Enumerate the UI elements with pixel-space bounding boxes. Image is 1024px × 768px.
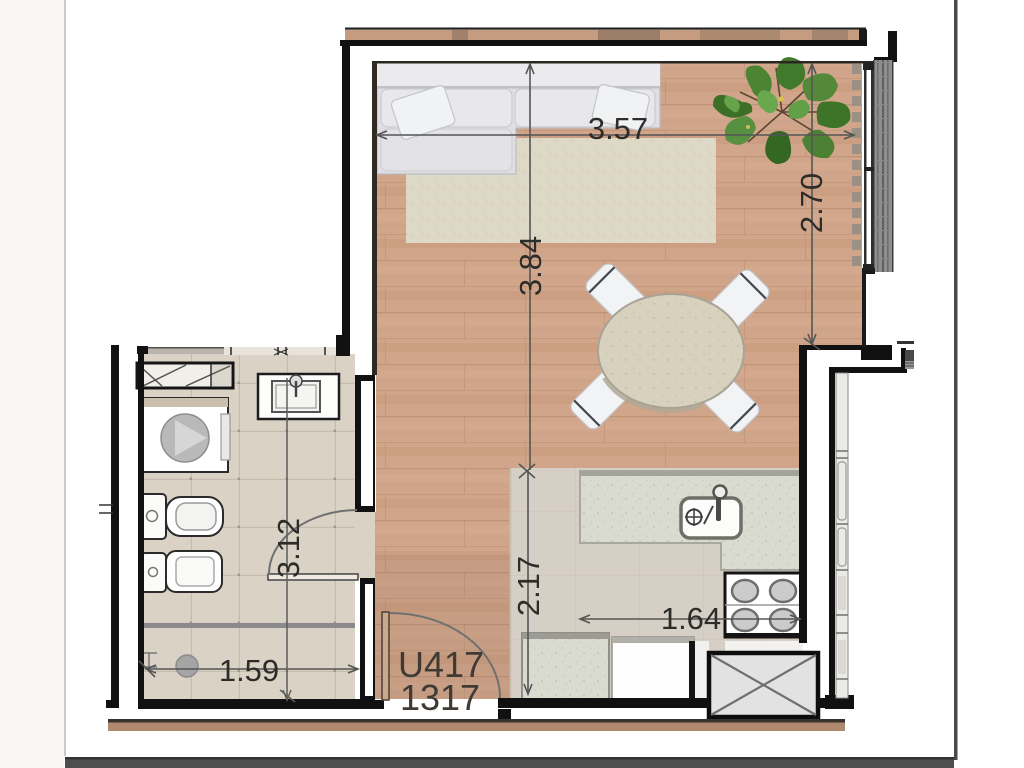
svg-text:3.84: 3.84 [513, 236, 548, 296]
svg-text:3.12: 3.12 [271, 518, 306, 578]
svg-text:1317: 1317 [400, 677, 480, 718]
svg-text:2.70: 2.70 [794, 173, 829, 233]
svg-text:2.17: 2.17 [511, 556, 546, 616]
svg-text:1.59: 1.59 [219, 653, 279, 688]
svg-text:3.57: 3.57 [588, 111, 648, 146]
svg-text:1.64: 1.64 [661, 601, 721, 636]
